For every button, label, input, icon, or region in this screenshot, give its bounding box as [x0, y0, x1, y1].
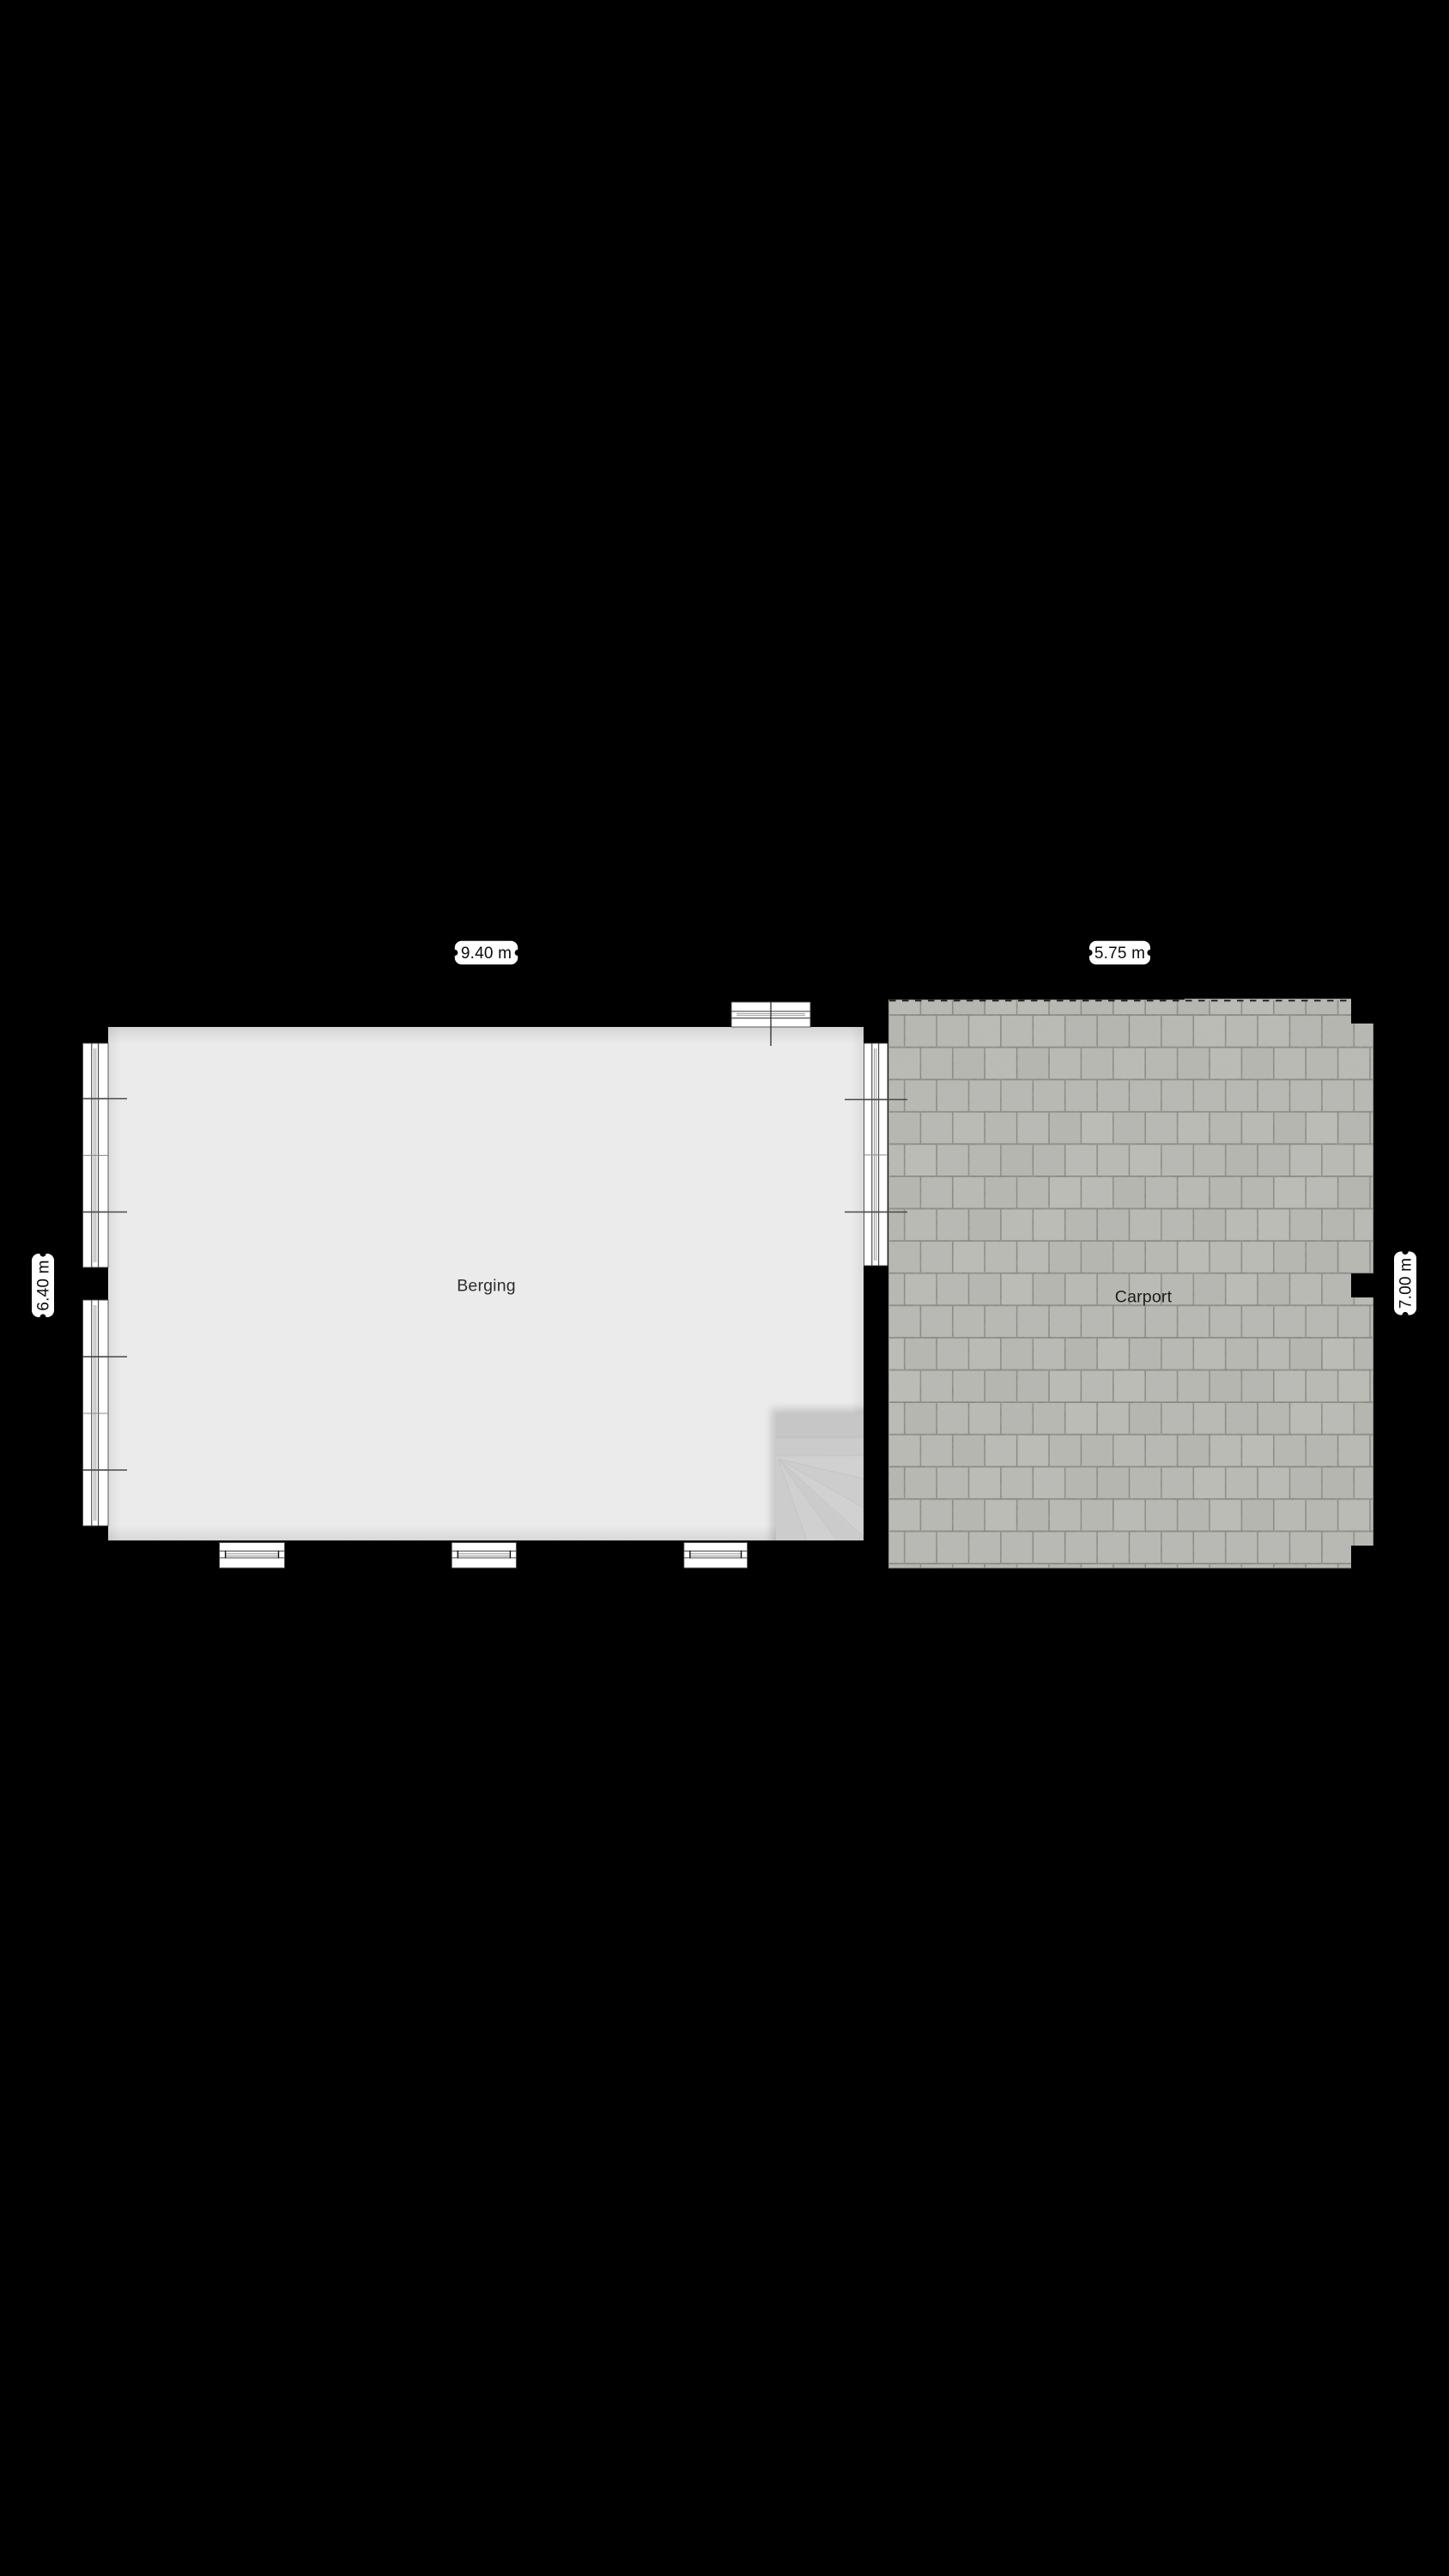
svg-text:Berging: Berging — [457, 1277, 516, 1296]
svg-text:7.00 m: 7.00 m — [1397, 1258, 1416, 1309]
svg-text:Carport: Carport — [1115, 1288, 1173, 1307]
svg-text:6.40 m: 6.40 m — [35, 1260, 53, 1310]
svg-text:9.40 m: 9.40 m — [461, 945, 512, 963]
svg-text:5.75 m: 5.75 m — [1094, 945, 1145, 963]
